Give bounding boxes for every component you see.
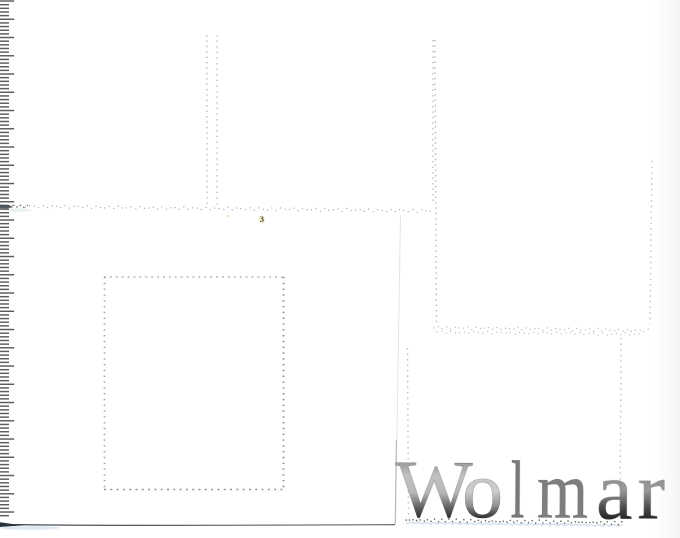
svg-text:l: l bbox=[510, 444, 524, 535]
svg-text:m: m bbox=[537, 446, 589, 537]
svg-text:a: a bbox=[596, 445, 633, 536]
svg-text:r: r bbox=[637, 445, 665, 536]
svg-text:o: o bbox=[462, 444, 504, 535]
svg-text:3: 3 bbox=[260, 214, 264, 224]
